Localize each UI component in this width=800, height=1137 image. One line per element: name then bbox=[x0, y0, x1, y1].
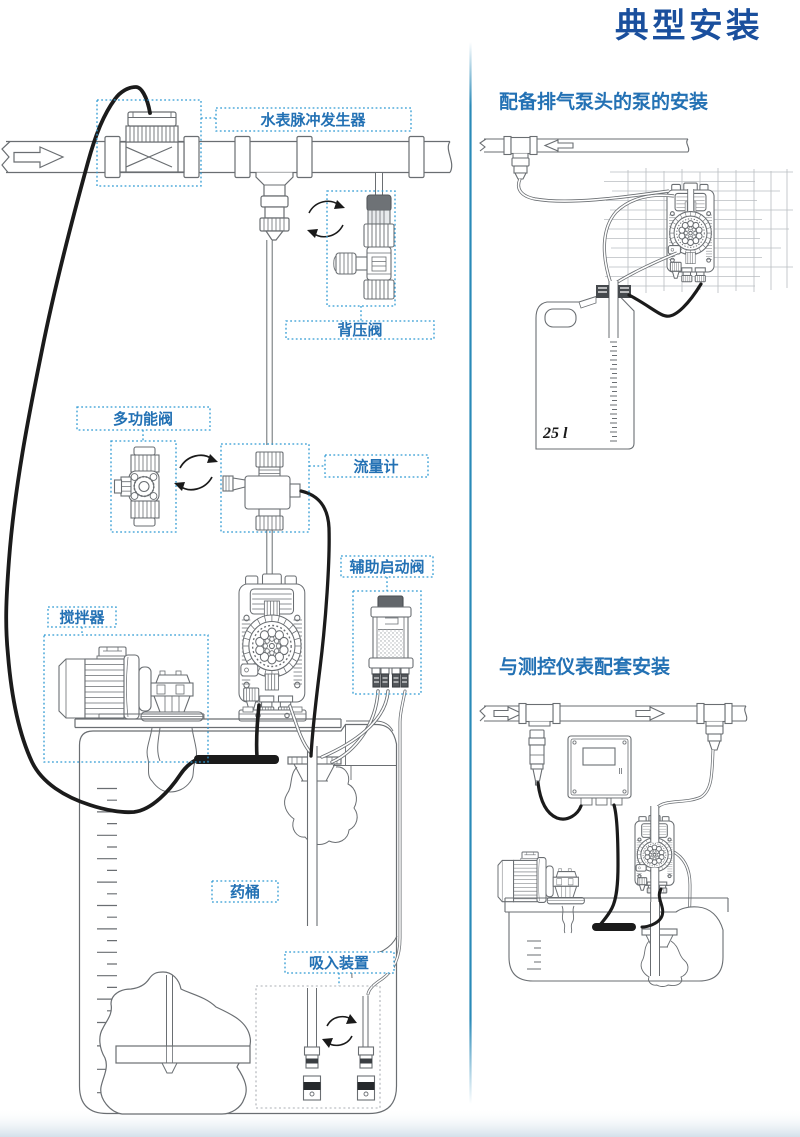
svg-text:搅拌器: 搅拌器 bbox=[59, 609, 105, 627]
svg-text:配备排气泵头的泵的安装: 配备排气泵头的泵的安装 bbox=[499, 90, 708, 113]
svg-text:25 l: 25 l bbox=[542, 425, 568, 442]
svg-text:与测控仪表配套安装: 与测控仪表配套安装 bbox=[499, 655, 670, 678]
svg-text:多功能阀: 多功能阀 bbox=[113, 410, 173, 428]
svg-text:水表脉冲发生器: 水表脉冲发生器 bbox=[260, 111, 366, 129]
svg-text:吸入装置: 吸入装置 bbox=[309, 954, 369, 972]
svg-text:典型安装: 典型安装 bbox=[615, 8, 763, 45]
svg-text:流量计: 流量计 bbox=[353, 458, 398, 476]
svg-text:辅助启动阀: 辅助启动阀 bbox=[349, 558, 424, 576]
svg-text:背压阀: 背压阀 bbox=[337, 321, 382, 339]
svg-text:药桶: 药桶 bbox=[230, 883, 260, 901]
